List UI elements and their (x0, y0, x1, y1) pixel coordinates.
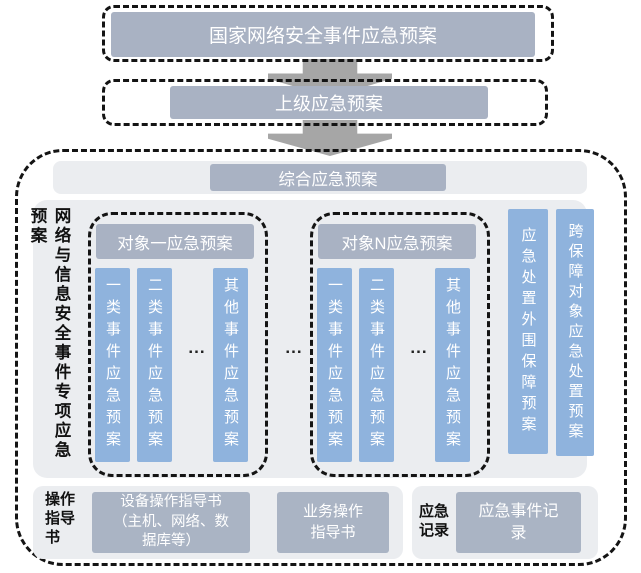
support-bar-perimeter: 应急处置外围保障预案 (508, 209, 548, 454)
records-label: 应急 记录 (419, 503, 457, 541)
side-label-special-plan: 网络与信息安全事件专项应急预案 (36, 207, 62, 478)
national-plan-box: 国家网络安全事件应急预案 (111, 12, 535, 57)
object1-group-title: 对象一应急预案 (96, 224, 254, 259)
support-bar-cross-object: 跨保障对象应急处置预案 (556, 209, 594, 456)
ellipsis: ... (407, 338, 431, 358)
objectN-group-title: 对象N应急预案 (318, 224, 476, 259)
plan-bar-type2: 二类事件应急预案 (137, 268, 172, 462)
comprehensive-plan-box: 综合应急预案 (210, 164, 446, 191)
ellipsis: ... (185, 338, 209, 358)
plan-bar-other: 其他事件应急预案 (435, 268, 470, 462)
ellipsis: ... (282, 338, 306, 358)
plan-bar-other: 其他事件应急预案 (213, 268, 248, 462)
plan-bar-type2: 二类事件应急预案 (359, 268, 394, 462)
superior-plan-box: 上级应急预案 (170, 86, 488, 119)
plan-bar-type1: 一类事件应急预案 (317, 268, 352, 462)
operations-label: 操作 指导 书 (45, 491, 81, 547)
incident-record-box: 应急事件记 录 (456, 492, 581, 553)
business-guide-box: 业务操作 指导书 (277, 492, 389, 553)
plan-bar-type1: 一类事件应急预案 (95, 268, 130, 462)
emergency-plan-diagram: 国家网络安全事件应急预案 上级应急预案 综合应急预案 网络与信息安全事件专项应急… (0, 0, 641, 573)
device-guide-box: 设备操作指导书 （主机、网络、数 据库等） (92, 492, 250, 553)
